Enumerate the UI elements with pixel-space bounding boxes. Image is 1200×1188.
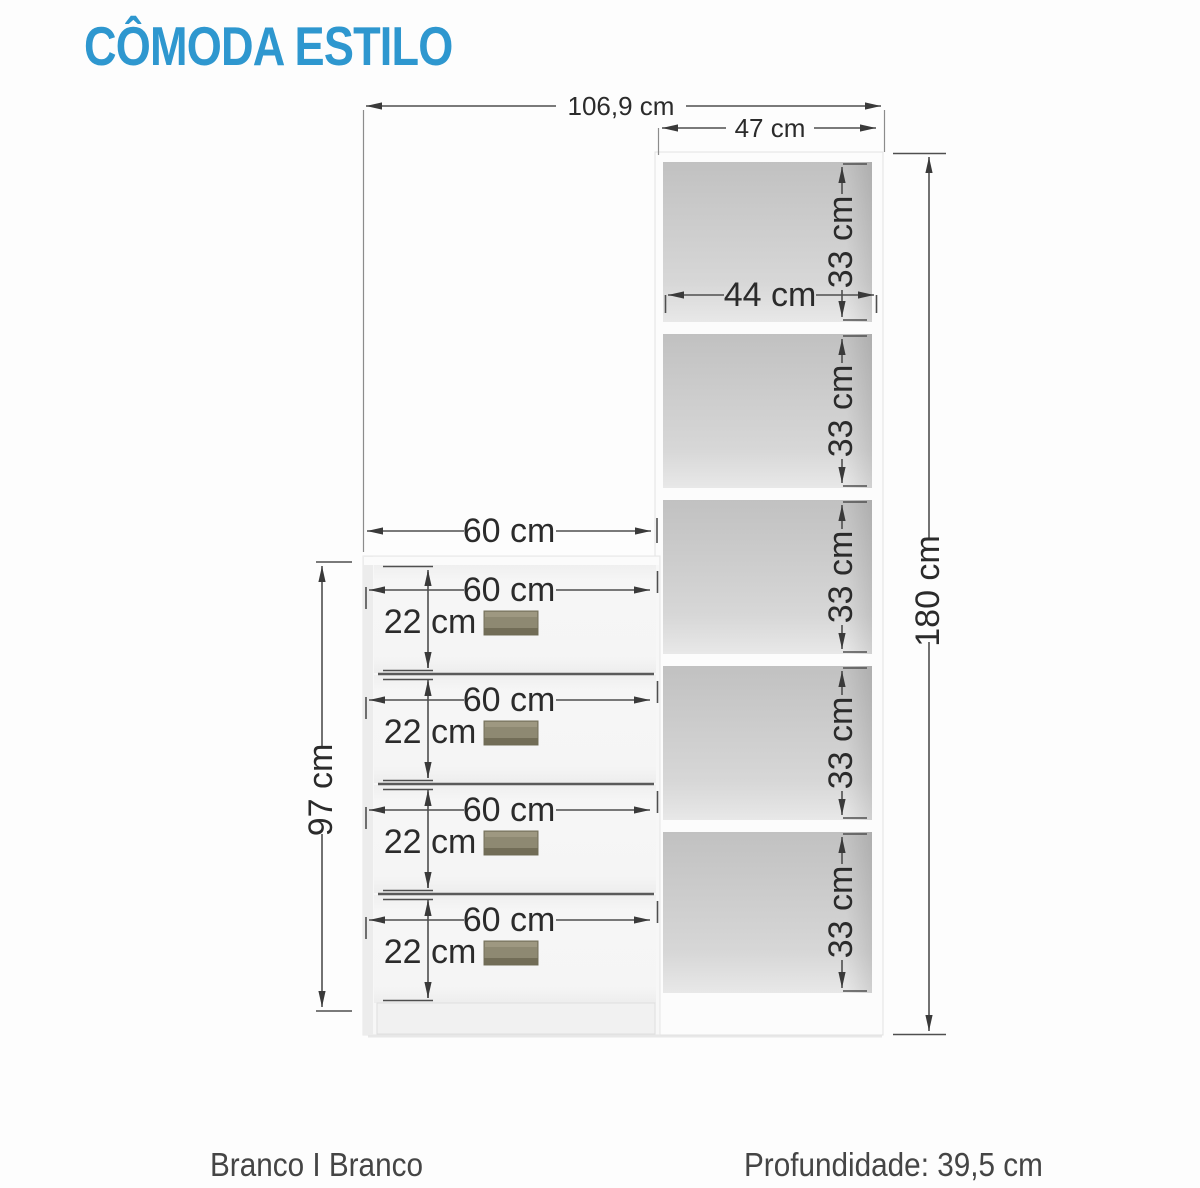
drawer-height-label: 22 cm [384, 603, 477, 641]
tower-inner-width-label: 44 cm [724, 276, 817, 314]
dim-dresser-height: 97 cm [302, 562, 352, 1011]
dresser-width-label: 60 cm [463, 512, 556, 550]
finish-label: Branco I Branco [210, 1146, 423, 1184]
dim-tower-width: 47 cm [659, 113, 877, 155]
drawer-height-label: 22 cm [384, 823, 477, 861]
drawer-handle [484, 721, 538, 745]
depth-label: Profundidade: 39,5 cm [744, 1146, 1043, 1184]
drawer-height-label: 22 cm [384, 933, 477, 971]
drawer-width-label: 60 cm [463, 901, 556, 939]
drawer-width-label: 60 cm [463, 571, 556, 609]
dresser-plinth [377, 1003, 655, 1034]
drawer-width-label: 60 cm [463, 681, 556, 719]
drawer-width-label: 60 cm [463, 791, 556, 829]
dresser-top-panel [364, 557, 659, 565]
dim-dresser-width: 60 cm [367, 512, 657, 550]
shelf-height-label: 33 cm [822, 365, 860, 458]
drawer-handle [484, 831, 538, 855]
tower-width-label: 47 cm [735, 113, 806, 143]
diagram-canvas: 106,9 cm 47 cm 180 cm 97 cm [0, 0, 1200, 1188]
tower-height-label: 180 cm [909, 535, 947, 647]
shelf-height-label: 33 cm [822, 531, 860, 624]
total-width-label: 106,9 cm [568, 91, 675, 121]
drawer-handle [484, 941, 538, 965]
drawer-handle [484, 611, 538, 635]
shelf-height-label: 33 cm [822, 196, 860, 289]
drawer-height-label: 22 cm [384, 713, 477, 751]
shelf-height-label: 33 cm [822, 866, 860, 959]
furniture-dimension-diagram: CÔMODA ESTILO [0, 0, 1200, 1188]
dresser-height-label: 97 cm [302, 744, 340, 837]
dresser-side-panel [363, 556, 373, 1035]
dim-tower-height: 180 cm [893, 154, 947, 1035]
shelf-height-label: 33 cm [822, 697, 860, 790]
